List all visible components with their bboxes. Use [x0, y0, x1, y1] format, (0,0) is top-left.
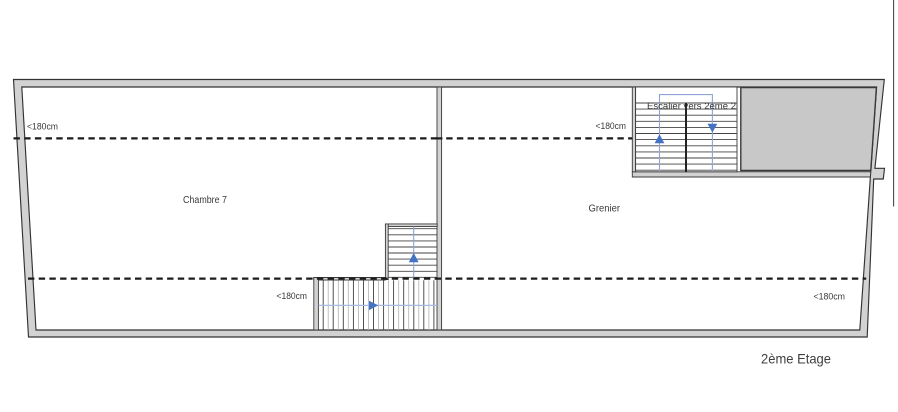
svg-text:<180cm: <180cm — [596, 121, 627, 131]
svg-text:Grenier: Grenier — [589, 204, 621, 215]
svg-text:<180cm: <180cm — [27, 122, 58, 132]
svg-text:Escalier vers 2ème 2: Escalier vers 2ème 2 — [647, 101, 736, 111]
svg-text:2ème Etage: 2ème Etage — [761, 352, 831, 367]
svg-text:Chambre 7: Chambre 7 — [183, 195, 227, 206]
svg-text:<180cm: <180cm — [814, 292, 846, 302]
svg-text:<180cm: <180cm — [277, 291, 308, 301]
